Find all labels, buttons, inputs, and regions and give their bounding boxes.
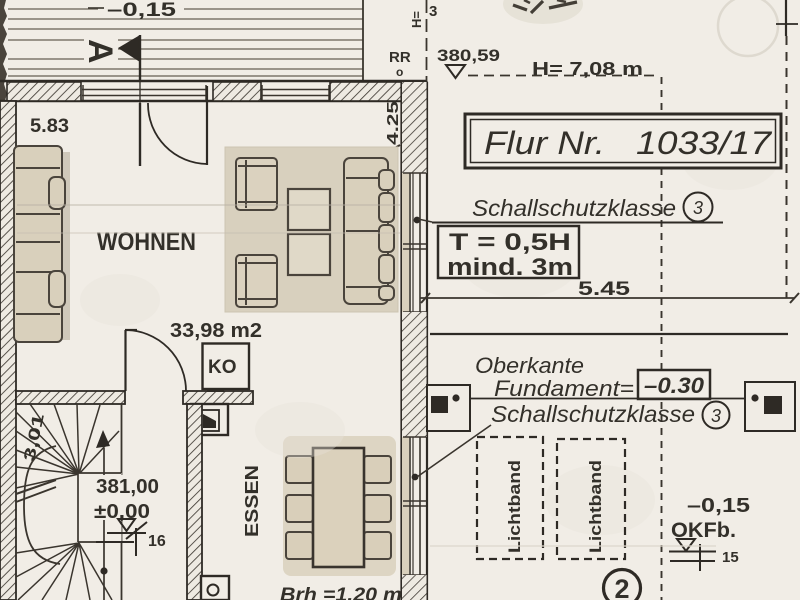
svg-text:380,59: 380,59 bbox=[437, 46, 500, 65]
svg-text:1033/17: 1033/17 bbox=[636, 125, 772, 161]
svg-text:16: 16 bbox=[148, 533, 166, 550]
svg-text:Flur Nr.: Flur Nr. bbox=[484, 125, 605, 161]
svg-text:T = 0,5H: T = 0,5H bbox=[449, 229, 571, 256]
svg-text:5.83: 5.83 bbox=[30, 116, 69, 137]
svg-text:Lichtband: Lichtband bbox=[505, 460, 524, 553]
svg-text:Fundament=: Fundament= bbox=[494, 376, 634, 401]
svg-text:33,98 m2: 33,98 m2 bbox=[170, 320, 262, 342]
svg-text:–0,15: –0,15 bbox=[687, 495, 750, 517]
svg-text:Oberkante: Oberkante bbox=[475, 353, 584, 378]
svg-text:RR: RR bbox=[389, 49, 411, 66]
svg-text:o: o bbox=[396, 65, 403, 79]
svg-text:15: 15 bbox=[722, 549, 739, 566]
svg-text:Brh =1,20 m: Brh =1,20 m bbox=[280, 585, 402, 600]
svg-text:ESSEN: ESSEN bbox=[242, 465, 262, 537]
svg-text:–0.30: –0.30 bbox=[644, 373, 705, 398]
svg-text:3: 3 bbox=[429, 3, 437, 20]
svg-text:Lichtband: Lichtband bbox=[586, 460, 605, 553]
svg-text:Schallschutzklasse: Schallschutzklasse bbox=[472, 195, 676, 221]
svg-text:3: 3 bbox=[693, 198, 703, 218]
svg-text:2: 2 bbox=[614, 574, 629, 600]
svg-text:–0,15: –0,15 bbox=[107, 0, 177, 21]
svg-text:381,00: 381,00 bbox=[96, 476, 159, 498]
svg-text:A: A bbox=[81, 39, 119, 64]
svg-text:H=: H= bbox=[409, 11, 424, 28]
svg-text:3,01: 3,01 bbox=[21, 412, 48, 463]
svg-text:5.45: 5.45 bbox=[578, 279, 631, 300]
svg-text:4.25: 4.25 bbox=[385, 101, 402, 145]
svg-text:mind. 3m: mind. 3m bbox=[447, 254, 573, 281]
svg-text:KO: KO bbox=[208, 357, 237, 378]
svg-text:Schallschutzklasse: Schallschutzklasse bbox=[491, 401, 695, 427]
svg-text:H= 7,08 m: H= 7,08 m bbox=[532, 59, 643, 79]
svg-text:WOHNEN: WOHNEN bbox=[97, 228, 196, 256]
svg-text:3: 3 bbox=[711, 406, 721, 426]
